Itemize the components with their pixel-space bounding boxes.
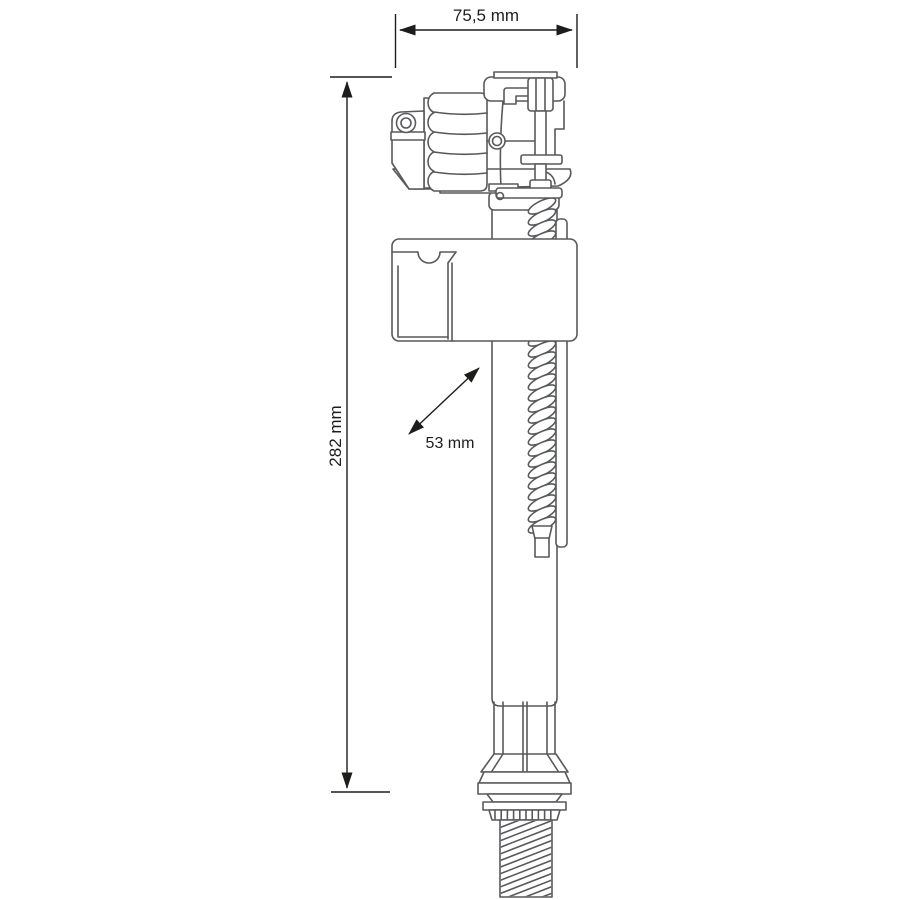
- tank-seal-flange: [478, 783, 571, 794]
- valve-head: [391, 72, 571, 200]
- dimension-float-diagonal: 53 mm: [409, 368, 479, 452]
- height-dimension-label: 282 mm: [326, 405, 345, 466]
- dimension-head-width: 75,5 mm: [396, 6, 578, 68]
- screw-tip: [535, 538, 549, 557]
- diagonal-dimension-arrow: [409, 368, 479, 434]
- rod-cross-bar: [521, 155, 562, 164]
- shank-ribs: [494, 702, 555, 754]
- flange-taper: [487, 794, 562, 802]
- screw-lock-clamp: [496, 188, 562, 198]
- adjustment-rod-upper: [535, 111, 546, 157]
- fill-valve-technical-drawing: 75,5 mm 282 mm 53 mm: [0, 0, 900, 900]
- lever-pivot-hole: [401, 118, 411, 128]
- inlet-assembly: [478, 702, 571, 900]
- cone-rim: [479, 772, 570, 783]
- technical-drawing-page: 75,5 mm 282 mm 53 mm: [0, 0, 900, 900]
- ribbed-adjuster-knob: [428, 93, 487, 191]
- head-right-edge: [555, 101, 564, 160]
- float-cup: [392, 239, 577, 341]
- knurled-nut: [489, 810, 560, 820]
- width-dimension-label: 75,5 mm: [453, 6, 519, 25]
- dimension-overall-height: 282 mm: [326, 77, 392, 792]
- cap-top-tab: [494, 72, 557, 78]
- inlet-thread: [499, 807, 553, 900]
- washer-flange: [483, 802, 566, 810]
- body-pivot-hole: [493, 137, 502, 146]
- lever-arm-bar: [391, 132, 425, 140]
- rod-clamp-head: [528, 78, 553, 111]
- diagonal-dimension-label: 53 mm: [426, 435, 475, 452]
- screw-tip-neck: [532, 526, 552, 539]
